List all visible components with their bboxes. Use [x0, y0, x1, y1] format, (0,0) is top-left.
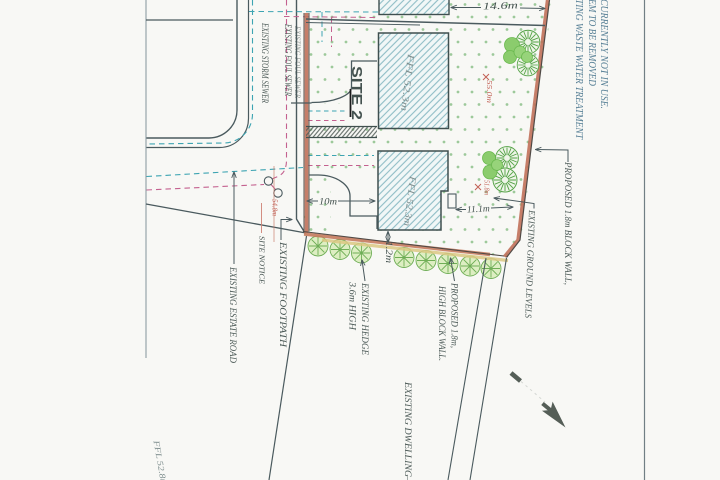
svg-text:HIGH BLOCK WALL.: HIGH BLOCK WALL.: [437, 285, 447, 361]
svg-text:EXISTING ESTATE ROAD: EXISTING ESTATE ROAD: [228, 266, 238, 363]
svg-text:PROPOSED 1.8m BLOCK WALL,: PROPOSED 1.8m BLOCK WALL,: [563, 161, 573, 285]
svg-text:EXISTING STORM SEWER: EXISTING STORM SEWER: [260, 22, 270, 103]
svg-text:51.8m: 51.8m: [483, 180, 491, 195]
svg-text:54.8m: 54.8m: [271, 199, 279, 216]
svg-text:55.0m: 55.0m: [485, 80, 493, 103]
svg-text:CURRENTLY NOT IN USE.: CURRENTLY NOT IN USE.: [598, 0, 609, 109]
svg-text:PROPOSED 1.8m,: PROPOSED 1.8m,: [450, 282, 460, 348]
svg-text:EXISTING DWELLING—: EXISTING DWELLING—: [403, 381, 413, 480]
svg-text:EXISTING FOUL SEWER: EXISTING FOUL SEWER: [283, 23, 293, 96]
svg-text:EXISTING FOOTPATH: EXISTING FOOTPATH: [278, 241, 288, 349]
svg-text:EM TO BE REMOVED: EM TO BE REMOVED: [586, 0, 597, 87]
svg-text:14.6m: 14.6m: [483, 0, 518, 12]
svg-text:SITE NOTICE: SITE NOTICE: [258, 236, 266, 285]
svg-text:1.2m: 1.2m: [384, 241, 394, 264]
svg-text:10m: 10m: [319, 198, 337, 208]
svg-text:EXISTING FOUL SEWER: EXISTING FOUL SEWER: [293, 25, 303, 98]
svg-text:3.6m HIGH: 3.6m HIGH: [348, 281, 358, 332]
svg-text:11.1m: 11.1m: [467, 204, 491, 215]
svg-text:TING WASTE WATER TREATMENT: TING WASTE WATER TREATMENT: [573, 0, 584, 140]
svg-text:EXISTING HEDGE: EXISTING HEDGE: [360, 282, 370, 355]
